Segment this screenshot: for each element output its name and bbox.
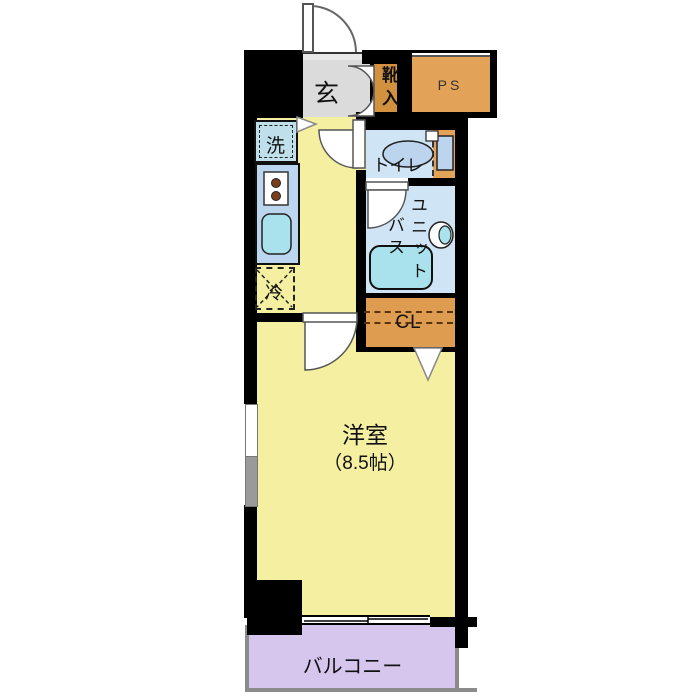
wall-segment: [408, 178, 455, 186]
wall-segment: [370, 60, 374, 117]
wall-segment: [356, 170, 366, 352]
unit-bath-label-line1: ユニット: [405, 196, 430, 284]
shoe-cabinet-label: 靴入: [376, 66, 401, 112]
entrance-label: 玄: [314, 74, 339, 110]
main-room-label: 洋室: [280, 416, 450, 450]
fridge-label: 冷: [265, 279, 283, 305]
left-window-upper: [245, 404, 258, 458]
toilet-pipe-strip: [433, 130, 455, 178]
balcony-outline-right: [455, 648, 459, 692]
balcony-outline-left: [245, 625, 249, 692]
unit-bath-label-line2: バス: [382, 216, 407, 260]
main-room-size-label: （8.5帖）: [280, 448, 450, 475]
washer-label: 洗: [266, 131, 285, 158]
toilet-label: トイレ: [364, 151, 432, 176]
wall-segment: [490, 50, 497, 118]
wall-segment: [356, 118, 468, 130]
sliding-window: [302, 615, 430, 625]
left-window-lower: [245, 456, 258, 507]
toilet-dashed-divider: [432, 132, 434, 176]
wall-segment: [244, 313, 303, 322]
wall-segment: [455, 130, 468, 648]
entrance-door-arc: [313, 6, 356, 52]
wall-segment: [245, 50, 303, 118]
wall-segment: [356, 293, 455, 298]
closet-label: CL: [366, 312, 451, 334]
balcony-label: バルコニー: [250, 650, 455, 679]
wall-segment: [247, 580, 302, 635]
wall-segment: [356, 347, 455, 352]
floor-plan: 玄 靴入 PS 洗 トイレ ユニット バス 冷 CL 洋室 （8.5帖） バルコ…: [0, 0, 700, 700]
kitchen-counter: [255, 163, 300, 265]
wall-segment: [430, 617, 477, 627]
entrance-door-leaf: [303, 4, 313, 52]
pipe-space-label: PS: [410, 77, 490, 93]
wall-segment: [412, 50, 497, 53]
main-room-door-gap-floor: [303, 313, 356, 322]
balcony-outline-bottom: [245, 688, 477, 692]
wall-segment: [412, 55, 490, 57]
